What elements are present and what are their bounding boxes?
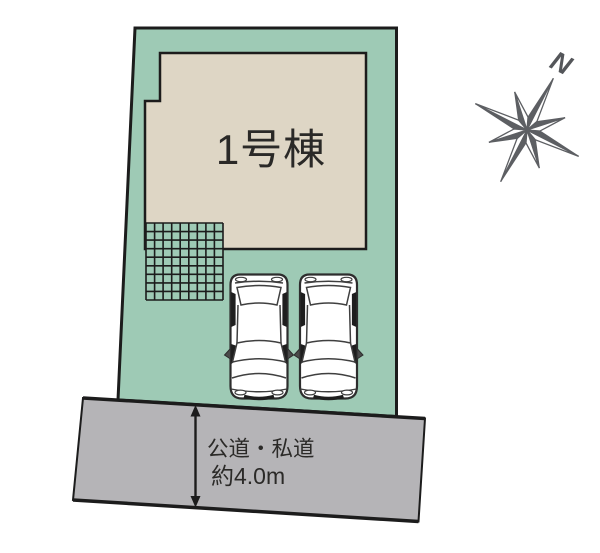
site-plan: 1号棟 公道・私道 約4.0m N [0,0,600,553]
compass-rose-icon: N [449,23,600,208]
site-plan-canvas: 1号棟 公道・私道 約4.0m N [0,0,600,553]
car-icon [225,275,294,399]
road-type-label: 公道・私道 [207,437,315,461]
building-label: 1号棟 [216,126,326,173]
road-width-label: 約4.0m [211,463,285,489]
car-icon [294,275,363,399]
compass-north-label: N [546,45,577,81]
tile-grid [146,223,223,300]
